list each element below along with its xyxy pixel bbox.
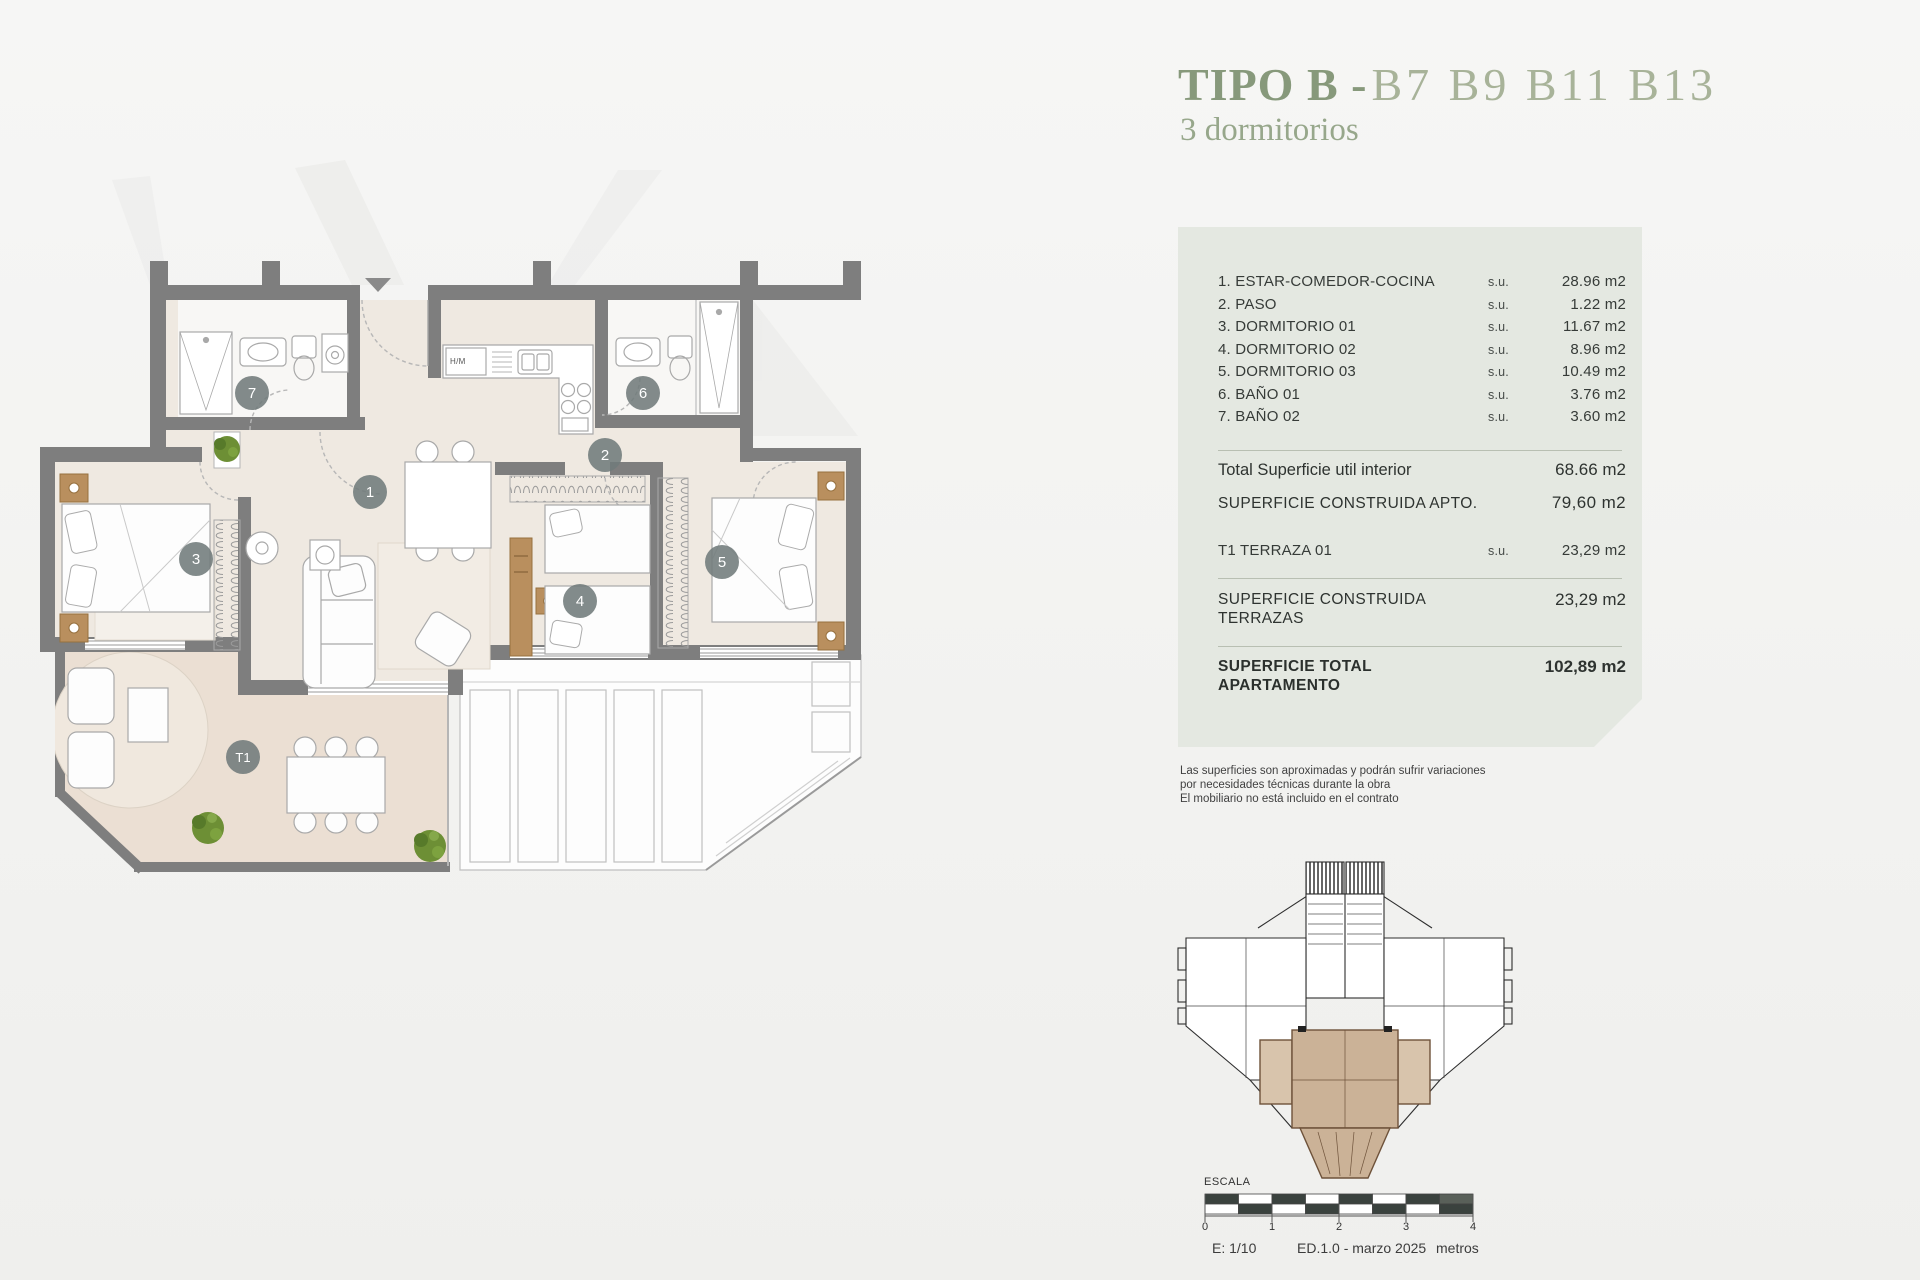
- room-badge-6: 6: [626, 376, 660, 410]
- terraza-row: T1 TERRAZA 01 s.u. 23,29 m2: [1218, 540, 1626, 563]
- appliance-label: H/M: [450, 357, 466, 366]
- room-badge-4: 4: [563, 584, 597, 618]
- scale-title: ESCALA: [1204, 1176, 1250, 1188]
- key-plan: [1178, 862, 1512, 1178]
- terrace-dining: [287, 737, 385, 833]
- plant-icon: [414, 830, 446, 862]
- plant-icon: [214, 436, 240, 462]
- sink: [616, 338, 660, 366]
- panel-divider: [1218, 578, 1622, 579]
- title-tipo: TIPO B -: [1178, 59, 1367, 110]
- room-row: 2. PASOs.u.1.22 m2: [1218, 294, 1626, 317]
- scale-bar: [1205, 1194, 1473, 1222]
- sofa: [303, 556, 375, 688]
- room-row: 1. ESTAR-COMEDOR-COCINAs.u.28.96 m2: [1218, 271, 1626, 294]
- room-row: 7. BAÑO 02s.u.3.60 m2: [1218, 406, 1626, 429]
- floorplan-brochure-page: { "title": { "tipo": "TIPO B -", "units"…: [0, 0, 1920, 1280]
- title-units: B7 B9 B11 B13: [1371, 59, 1717, 110]
- toilet: [668, 336, 692, 358]
- total-apartamento-row: SUPERFICIE TOTAL APARTAMENTO 102,89 m2: [1218, 657, 1626, 695]
- construida-terrazas-row: SUPERFICIE CONSTRUIDA TERRAZAS 23,29 m2: [1218, 590, 1626, 628]
- scale-edition: ED.1.0 - marzo 2025: [1297, 1240, 1426, 1256]
- terrace-table: [287, 757, 385, 813]
- dining-table: [405, 462, 491, 548]
- room-badge-1: 1: [353, 475, 387, 509]
- wardrobe: [510, 476, 645, 502]
- shower-tray: [700, 302, 738, 413]
- surface-panel: 1. ESTAR-COMEDOR-COCINAs.u.28.96 m2 2. P…: [1178, 227, 1642, 747]
- page-subtitle: 3 dormitorios: [1180, 112, 1359, 149]
- scale-unit: metros: [1436, 1240, 1479, 1256]
- page-title: TIPO B - B7 B9 B11 B13: [1178, 58, 1717, 111]
- panel-divider: [1218, 450, 1622, 451]
- room-badge-5: 5: [705, 545, 739, 579]
- room-row: 5. DORMITORIO 03s.u.10.49 m2: [1218, 361, 1626, 384]
- room-badge-3: 3: [179, 542, 213, 576]
- total-interior-row: Total Superficie util interior 68.66 m2: [1218, 460, 1626, 480]
- lounge-chair: [68, 668, 114, 724]
- neighbour-terrace: [460, 655, 861, 870]
- scale-tick-4: 4: [1462, 1221, 1484, 1233]
- construida-apto-row: SUPERFICIE CONSTRUIDA APTO. 79,60 m2: [1218, 493, 1626, 513]
- lounge-chair: [68, 732, 114, 788]
- sink: [240, 338, 286, 366]
- panel-divider: [1218, 646, 1622, 647]
- wardrobe: [214, 520, 240, 650]
- room-row: 6. BAÑO 01s.u.3.76 m2: [1218, 384, 1626, 407]
- shower-tray: [180, 332, 232, 414]
- terrace-badge-t1: T1: [226, 740, 260, 774]
- wardrobe: [658, 478, 688, 648]
- scale-tick-3: 3: [1395, 1221, 1417, 1233]
- room-badge-2: 2: [588, 438, 622, 472]
- scale-ratio: E: 1/10: [1212, 1240, 1256, 1256]
- room-row: 4. DORMITORIO 02s.u.8.96 m2: [1218, 339, 1626, 362]
- terrace-furniture: [52, 652, 208, 808]
- plant-icon: [192, 812, 224, 844]
- scale-tick-2: 2: [1328, 1221, 1350, 1233]
- scale-tick-1: 1: [1261, 1221, 1283, 1233]
- scale-tick-0: 0: [1194, 1221, 1216, 1233]
- disclaimer: Las superficies son aproximadas y podrán…: [1180, 764, 1486, 806]
- pillow: [549, 620, 583, 649]
- toilet: [292, 336, 316, 358]
- room-row: 3. DORMITORIO 01s.u.11.67 m2: [1218, 316, 1626, 339]
- room-badge-7: 7: [235, 376, 269, 410]
- coffee-table: [128, 688, 168, 742]
